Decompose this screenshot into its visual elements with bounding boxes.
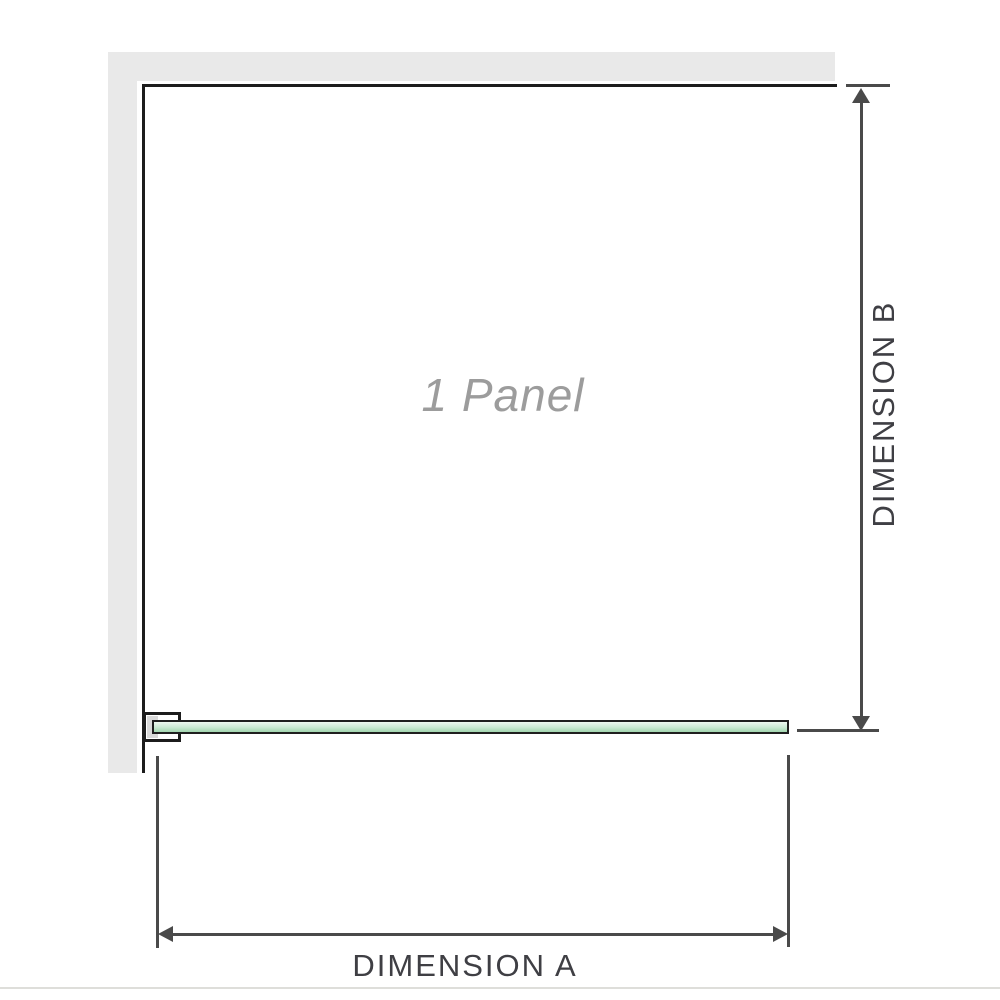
dimension-a-label: DIMENSION A bbox=[352, 948, 577, 984]
dimension-b-line bbox=[860, 98, 863, 720]
panel-count-label: 1 Panel bbox=[421, 368, 584, 422]
panel-outline-top bbox=[142, 84, 837, 87]
dimension-a-left-extension bbox=[156, 756, 159, 948]
dimension-b-top-tick bbox=[846, 84, 890, 87]
wall-top bbox=[108, 52, 835, 81]
image-bottom-rule bbox=[0, 987, 1000, 989]
panel-outline-left bbox=[142, 84, 145, 773]
dimension-a-arrow-right-icon bbox=[773, 926, 788, 942]
dimension-a-line bbox=[166, 933, 780, 936]
dimension-b-label: DIMENSION B bbox=[866, 301, 902, 528]
dimension-b-bottom-tick bbox=[797, 729, 879, 732]
dimension-a-right-extension bbox=[787, 755, 790, 947]
wall-left bbox=[108, 52, 137, 773]
diagram-canvas: 1 Panel DIMENSION B DIMENSION A bbox=[0, 0, 1000, 1000]
glass-panel bbox=[152, 720, 789, 734]
